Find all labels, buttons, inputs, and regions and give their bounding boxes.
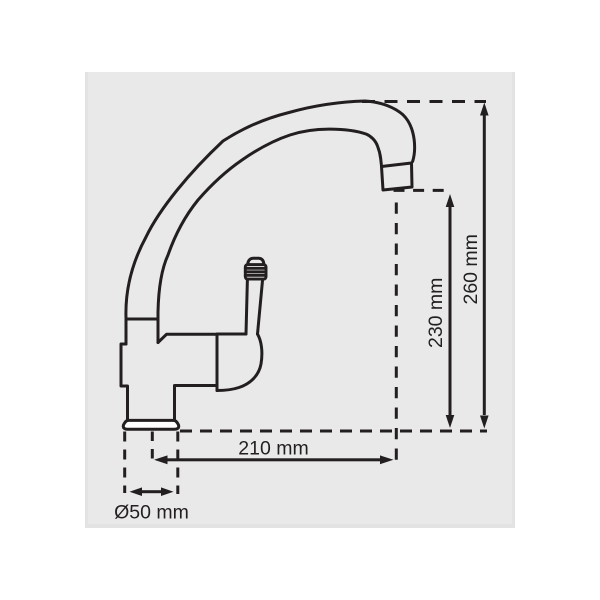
svg-text:230 mm: 230 mm [425, 278, 447, 348]
svg-text:210 mm: 210 mm [238, 438, 308, 460]
svg-text:260 mm: 260 mm [460, 234, 482, 304]
svg-text:Ø50 mm: Ø50 mm [114, 502, 189, 524]
